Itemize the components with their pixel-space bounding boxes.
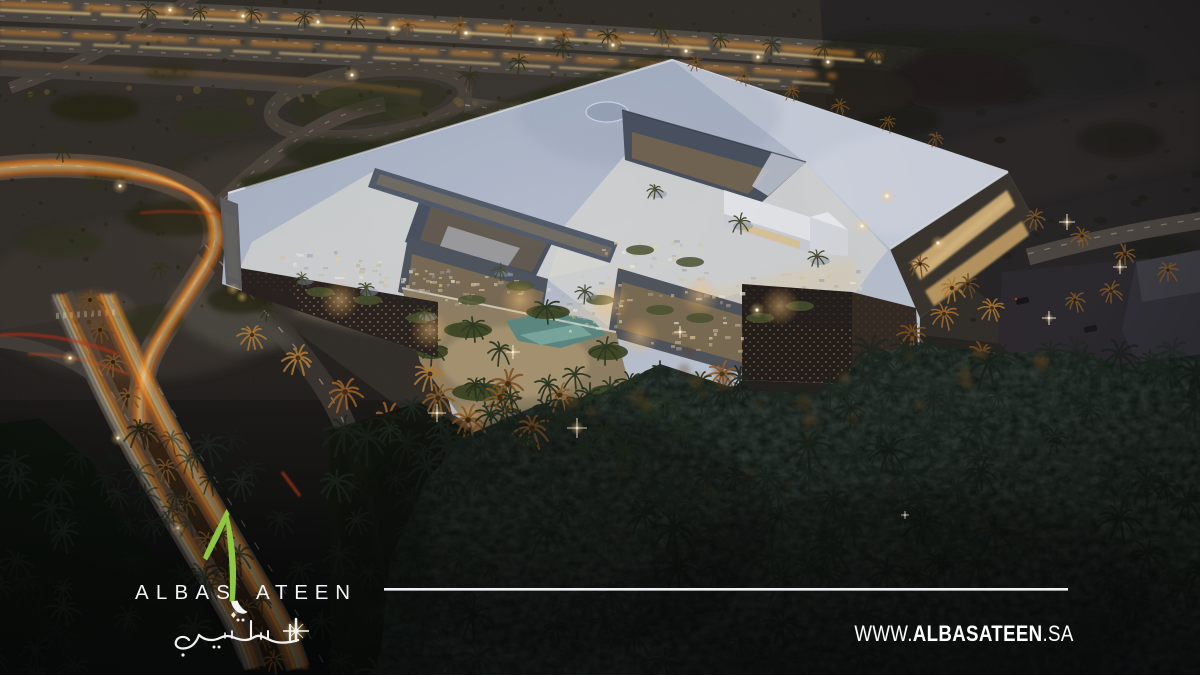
svg-text:ALBAS: ALBAS bbox=[135, 581, 237, 604]
svg-text:ATEEN: ATEEN bbox=[256, 581, 357, 604]
svg-text:WWW.ALBASATEEN.SA: WWW.ALBASATEEN.SA bbox=[854, 623, 1073, 647]
